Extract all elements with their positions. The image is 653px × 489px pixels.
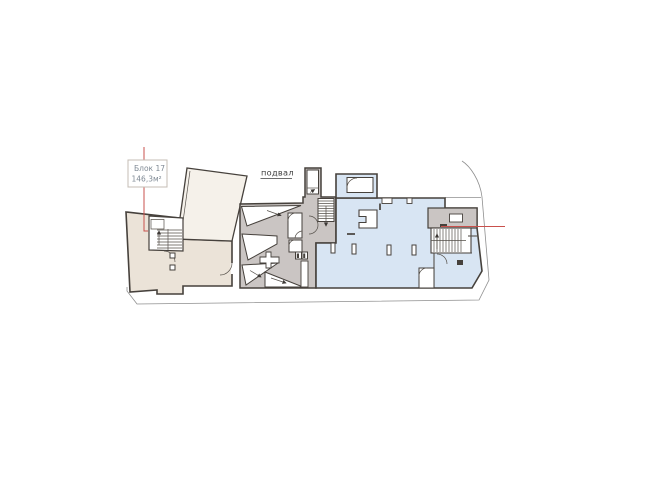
corridor [288,213,302,238]
column [170,253,175,258]
floor-label-text: подвал [261,168,294,178]
block-17-label-name: Блок 17 [134,164,165,173]
column [170,265,175,270]
entry-ramp [177,168,247,241]
elevators [296,252,308,259]
floor-plan-page: Блок 17 146,3м² подвал [0,0,653,489]
hall-section [316,174,482,288]
block-17-label[interactable]: Блок 17 146,3м² [128,160,167,187]
floor-label: подвал [261,168,294,179]
floor-plan-drawing: Блок 17 146,3м² подвал [0,0,653,489]
block-17-label-area: 146,3м² [132,175,162,184]
hall-staircase [428,208,477,253]
